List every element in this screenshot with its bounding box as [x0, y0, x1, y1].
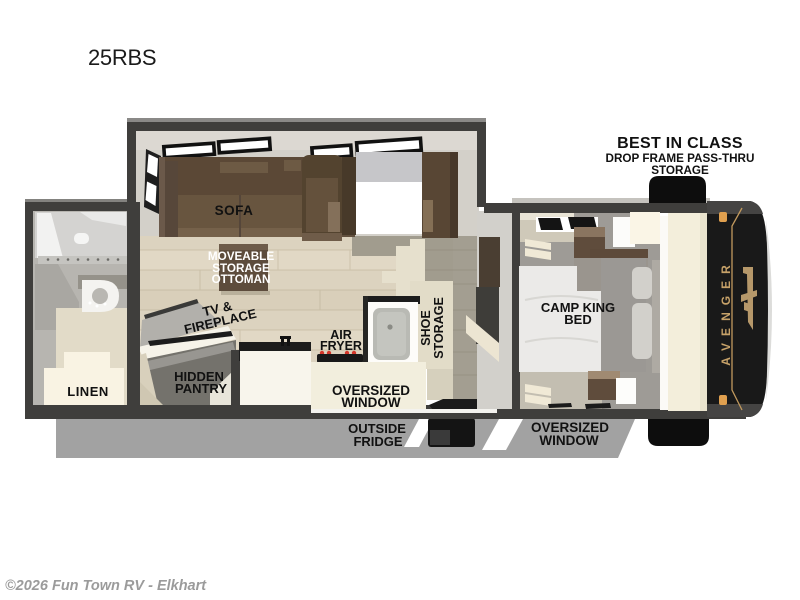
svg-text:STORAGE: STORAGE — [651, 164, 709, 177]
svg-text:©2026 Fun Town RV - Elkhart: ©2026 Fun Town RV - Elkhart — [5, 578, 207, 594]
svg-text:AVENGER: AVENGER — [719, 258, 733, 365]
svg-text:LINEN: LINEN — [67, 384, 109, 399]
svg-text:BED: BED — [564, 312, 591, 327]
svg-text:SHOE: SHOE — [419, 310, 433, 345]
svg-text:25RBS: 25RBS — [88, 45, 156, 70]
svg-text:FRIDGE: FRIDGE — [353, 434, 402, 449]
svg-text:OTTOMAN: OTTOMAN — [212, 273, 271, 286]
svg-text:FRYER: FRYER — [320, 339, 362, 353]
svg-text:STORAGE: STORAGE — [432, 297, 446, 359]
svg-text:BEST IN CLASS: BEST IN CLASS — [617, 135, 743, 152]
svg-text:PANTRY: PANTRY — [175, 381, 227, 396]
svg-text:WINDOW: WINDOW — [539, 433, 598, 448]
svg-text:SOFA: SOFA — [215, 203, 254, 218]
svg-text:WINDOW: WINDOW — [341, 395, 400, 410]
